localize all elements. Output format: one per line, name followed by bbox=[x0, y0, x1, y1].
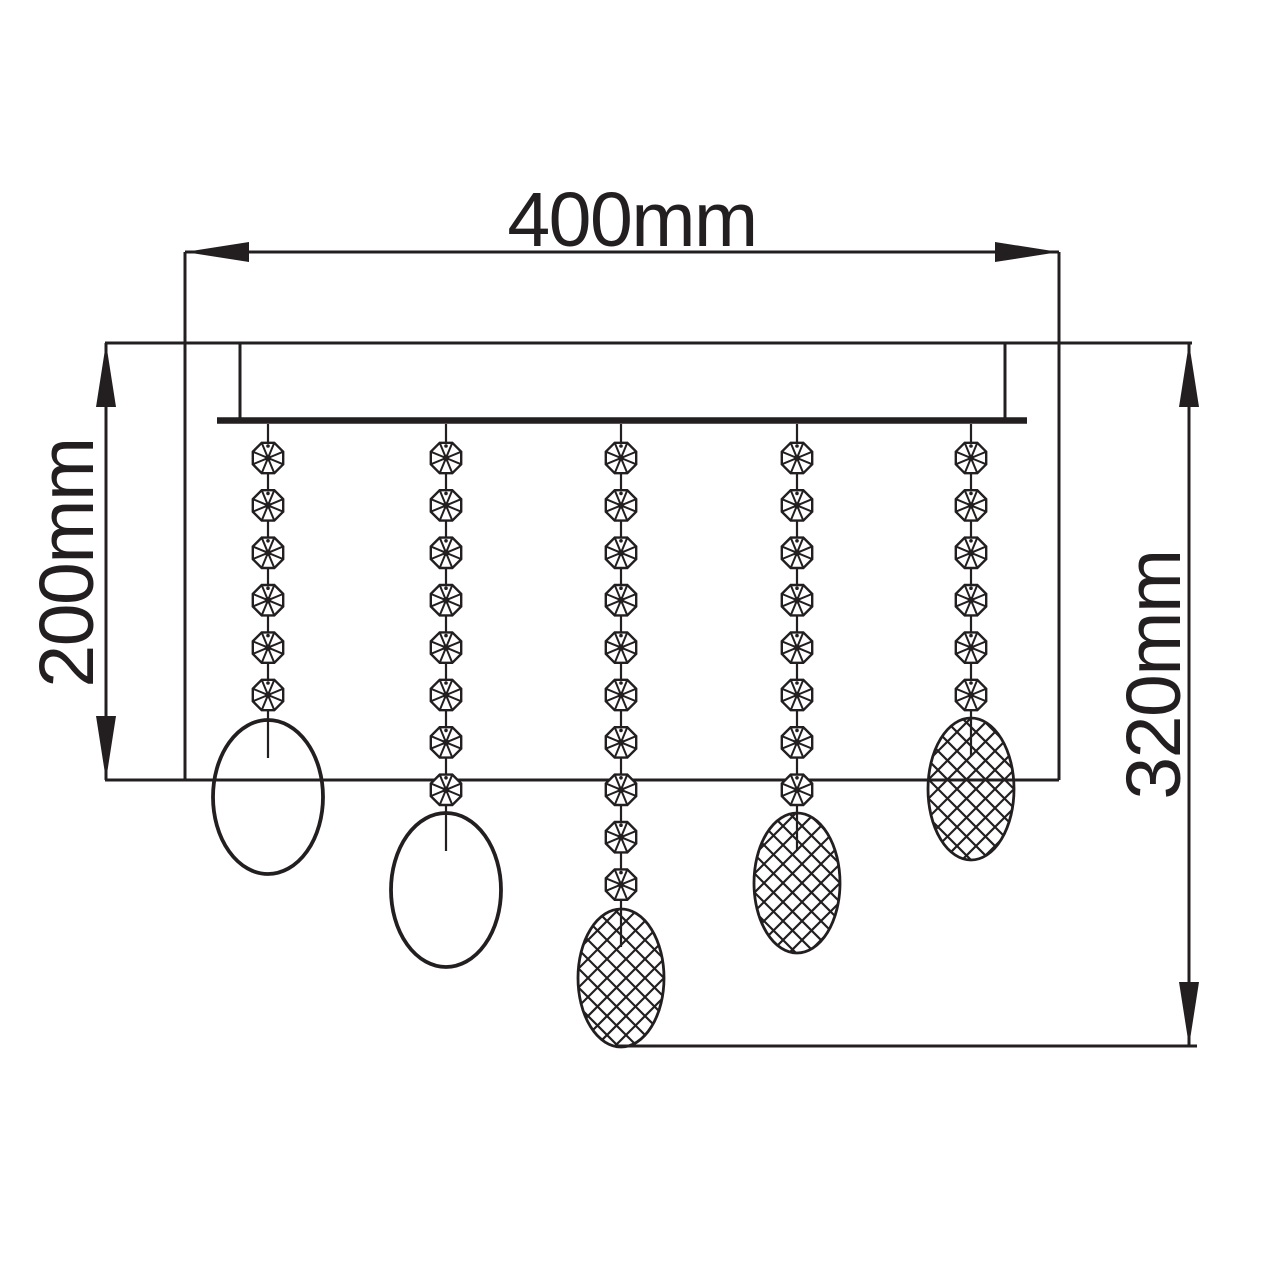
bead-center bbox=[265, 597, 271, 603]
bead-hole bbox=[619, 634, 623, 638]
beads-layer bbox=[253, 443, 986, 900]
octagon-bead bbox=[956, 585, 986, 615]
octagon-bead bbox=[431, 490, 461, 520]
bead-hole bbox=[619, 729, 623, 733]
bead-hole bbox=[619, 444, 623, 448]
octagon-bead bbox=[956, 490, 986, 520]
bead-hole bbox=[969, 634, 973, 638]
bead-hole bbox=[444, 776, 448, 780]
hatch-line bbox=[505, 838, 785, 1118]
octagon-bead bbox=[782, 775, 812, 805]
dimension-arrowhead bbox=[96, 716, 116, 780]
bead-center bbox=[618, 881, 624, 887]
bead-center bbox=[443, 787, 449, 793]
octagon-bead bbox=[782, 538, 812, 568]
octagon-bead bbox=[782, 585, 812, 615]
hatch-line bbox=[681, 743, 961, 1023]
bead-center bbox=[618, 502, 624, 508]
fixture-drawing bbox=[96, 242, 1280, 1118]
bead-center bbox=[794, 597, 800, 603]
octagon-bead bbox=[956, 538, 986, 568]
bead-hole bbox=[266, 444, 270, 448]
octagon-bead bbox=[606, 538, 636, 568]
bead-center bbox=[443, 597, 449, 603]
bead-hole bbox=[969, 444, 973, 448]
bead-center bbox=[618, 692, 624, 698]
bead-hole bbox=[969, 492, 973, 496]
bead-hole bbox=[795, 729, 799, 733]
dimension-label-width: 400mm bbox=[507, 177, 756, 263]
octagon-bead bbox=[606, 490, 636, 520]
bead-hole bbox=[619, 823, 623, 827]
bead-hole bbox=[266, 681, 270, 685]
bead-hole bbox=[444, 492, 448, 496]
hatch-line bbox=[608, 649, 888, 929]
bead-center bbox=[794, 455, 800, 461]
bead-hole bbox=[969, 681, 973, 685]
octagon-bead bbox=[253, 585, 283, 615]
bead-hole bbox=[795, 492, 799, 496]
bead-hole bbox=[795, 681, 799, 685]
bead-hole bbox=[795, 586, 799, 590]
octagon-bead bbox=[431, 538, 461, 568]
octagon-bead bbox=[606, 727, 636, 757]
technical-drawing: 400mm 200mm 320mm bbox=[0, 0, 1280, 1280]
bead-hole bbox=[795, 444, 799, 448]
bead-center bbox=[968, 502, 974, 508]
octagon-bead bbox=[956, 680, 986, 710]
dimension-arrowhead bbox=[185, 242, 249, 262]
bead-center bbox=[968, 597, 974, 603]
dimension-arrowhead bbox=[1179, 982, 1199, 1046]
octagon-bead bbox=[782, 680, 812, 710]
bead-center bbox=[265, 550, 271, 556]
bead-center bbox=[794, 644, 800, 650]
bead-hole bbox=[444, 444, 448, 448]
bead-center bbox=[265, 692, 271, 698]
bead-center bbox=[265, 455, 271, 461]
bead-hole bbox=[969, 539, 973, 543]
bead-hole bbox=[444, 539, 448, 543]
bead-hole bbox=[266, 586, 270, 590]
bead-hole bbox=[266, 539, 270, 543]
octagon-bead bbox=[606, 869, 636, 899]
octagon-bead bbox=[253, 538, 283, 568]
bead-hole bbox=[619, 586, 623, 590]
bead-center bbox=[794, 739, 800, 745]
octagon-bead bbox=[782, 443, 812, 473]
octagon-bead bbox=[431, 632, 461, 662]
octagon-bead bbox=[253, 443, 283, 473]
bead-hole bbox=[619, 539, 623, 543]
bead-hole bbox=[969, 586, 973, 590]
bead-center bbox=[443, 644, 449, 650]
octagon-bead bbox=[606, 680, 636, 710]
bead-center bbox=[443, 692, 449, 698]
hatch-line bbox=[624, 743, 904, 1023]
octagon-bead bbox=[782, 490, 812, 520]
octagon-bead bbox=[253, 490, 283, 520]
dimension-arrowhead bbox=[995, 242, 1059, 262]
bead-center bbox=[968, 550, 974, 556]
bead-hole bbox=[619, 871, 623, 875]
bead-center bbox=[618, 597, 624, 603]
bead-center bbox=[618, 455, 624, 461]
octagon-bead bbox=[431, 443, 461, 473]
dimension-arrowhead bbox=[1179, 343, 1199, 407]
bead-center bbox=[794, 787, 800, 793]
hatch-line bbox=[608, 649, 888, 929]
bead-hole bbox=[444, 586, 448, 590]
octagon-bead bbox=[606, 443, 636, 473]
bead-center bbox=[443, 502, 449, 508]
dimension-label-left-height: 200mm bbox=[24, 438, 110, 687]
octagon-bead bbox=[431, 585, 461, 615]
octagon-bead bbox=[606, 822, 636, 852]
bead-center bbox=[443, 455, 449, 461]
bead-center bbox=[265, 502, 271, 508]
octagon-bead bbox=[253, 632, 283, 662]
octagon-bead bbox=[606, 632, 636, 662]
bead-hole bbox=[795, 776, 799, 780]
bead-center bbox=[968, 692, 974, 698]
bead-hole bbox=[444, 681, 448, 685]
bead-center bbox=[618, 550, 624, 556]
bead-hole bbox=[266, 492, 270, 496]
octagon-bead bbox=[253, 680, 283, 710]
bead-center bbox=[794, 502, 800, 508]
octagon-bead bbox=[606, 585, 636, 615]
octagon-bead bbox=[431, 727, 461, 757]
bead-center bbox=[968, 455, 974, 461]
bead-center bbox=[968, 644, 974, 650]
bead-center bbox=[618, 787, 624, 793]
bead-center bbox=[794, 692, 800, 698]
octagon-bead bbox=[956, 632, 986, 662]
dimension-arrowhead bbox=[96, 343, 116, 407]
bead-center bbox=[443, 550, 449, 556]
bead-hole bbox=[619, 492, 623, 496]
drawing-page: 400mm 200mm 320mm bbox=[0, 0, 1280, 1280]
bead-hole bbox=[795, 539, 799, 543]
bead-hole bbox=[444, 634, 448, 638]
octagon-bead bbox=[431, 775, 461, 805]
octagon-bead bbox=[782, 632, 812, 662]
dimension-label-right-height: 320mm bbox=[1111, 550, 1197, 799]
bead-center bbox=[794, 550, 800, 556]
octagon-bead bbox=[956, 443, 986, 473]
bead-center bbox=[618, 834, 624, 840]
bead-center bbox=[443, 739, 449, 745]
bead-hole bbox=[795, 634, 799, 638]
octagon-bead bbox=[431, 680, 461, 710]
bead-center bbox=[265, 644, 271, 650]
bead-hole bbox=[444, 729, 448, 733]
bead-hole bbox=[619, 776, 623, 780]
bead-center bbox=[618, 644, 624, 650]
octagon-bead bbox=[606, 775, 636, 805]
bead-center bbox=[618, 739, 624, 745]
octagon-bead bbox=[782, 727, 812, 757]
bead-hole bbox=[619, 681, 623, 685]
hatch-line bbox=[855, 649, 1135, 929]
bead-hole bbox=[266, 634, 270, 638]
